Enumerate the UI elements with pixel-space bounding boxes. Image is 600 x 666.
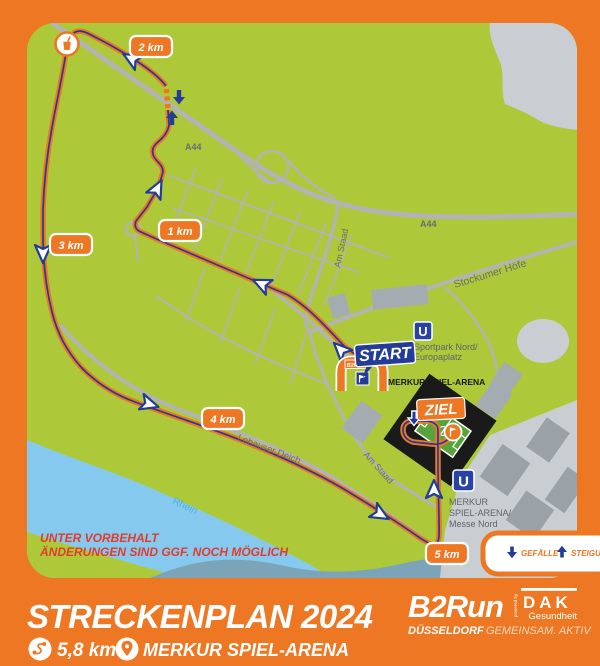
station-name-line: SPIEL-ARENA/	[449, 508, 512, 518]
course-map-svg: A44 A44 Am Staad Am Staad Stockumer Höfe…	[0, 0, 600, 666]
svg-text:1 km: 1 km	[167, 226, 192, 238]
ubahn-u: U	[458, 474, 469, 491]
distance-value: 5,8 km	[57, 640, 116, 661]
logo-city-text: DÜSSELDORF	[408, 624, 484, 637]
station-name-line: MERKUR	[449, 497, 489, 507]
arena-map-label: MERKUR SPIEL-ARENA	[388, 377, 485, 387]
location-pin-icon	[116, 638, 139, 661]
dak-logo-text: DAK	[523, 593, 572, 612]
cup-icon	[63, 42, 71, 50]
route-distance-icon	[29, 638, 52, 661]
station-name-line: Sportpark Nord/	[414, 342, 478, 352]
km-marker-1: 1 km	[159, 220, 201, 241]
station-name-line: Messe Nord	[449, 519, 498, 529]
km-marker-2: 2 km	[130, 36, 172, 57]
disclaimer-line1: UNTER VORBEHALT	[40, 531, 160, 545]
svg-text:4 km: 4 km	[209, 414, 235, 426]
svg-text:3 km: 3 km	[58, 240, 83, 252]
drink-station	[56, 33, 79, 56]
b2run-logo-text: B2Run	[408, 589, 503, 624]
svg-text:2 km: 2 km	[137, 42, 163, 54]
svg-text:5 km: 5 km	[434, 549, 459, 561]
powered-by-text: powered by	[513, 593, 518, 617]
station-name-line: Europaplatz	[414, 352, 463, 362]
gefaelle-label: GEFÄLLE	[521, 549, 559, 558]
ziel-label-text: ZIEL	[423, 401, 457, 420]
ziel-label: ZIEL	[416, 397, 465, 420]
km-marker-5: 5 km	[426, 543, 468, 564]
km-marker-3: 3 km	[50, 234, 92, 255]
legend-box: GEFÄLLE STEIGUNG	[483, 533, 600, 574]
dak-logo-bar	[521, 588, 577, 591]
poster-title: STRECKENPLAN 2024	[27, 598, 373, 635]
finish-flag-point	[445, 424, 462, 441]
map-area: A44 A44 Am Staad Am Staad Stockumer Höfe…	[27, 6, 587, 578]
km-marker-4: 4 km	[202, 408, 244, 429]
b2run-dak-logo: B2Run powered by DAK Gesundheit DÜSSELDO…	[408, 588, 592, 637]
steigung-label: STEIGUNG	[571, 549, 600, 558]
gray-field-blob	[517, 319, 569, 363]
ubahn-u: U	[418, 324, 427, 339]
logo-tagline-text: GEMEINSAM. AKTIV	[486, 625, 592, 637]
a44-label-west: A44	[185, 142, 202, 152]
route-a44-crossing-dashed	[166, 86, 168, 108]
finish-pennant-icon	[356, 372, 369, 385]
streckenplan-poster: A44 A44 Am Staad Am Staad Stockumer Höfe…	[0, 0, 600, 666]
dak-gesundheit-text: Gesundheit	[528, 611, 577, 622]
disclaimer-line2: ÄNDERUNGEN SIND GGF. NOCH MÖGLICH	[39, 544, 288, 559]
a44-label-east: A44	[420, 219, 437, 229]
venue-value: MERKUR SPIEL-ARENA	[143, 640, 349, 660]
